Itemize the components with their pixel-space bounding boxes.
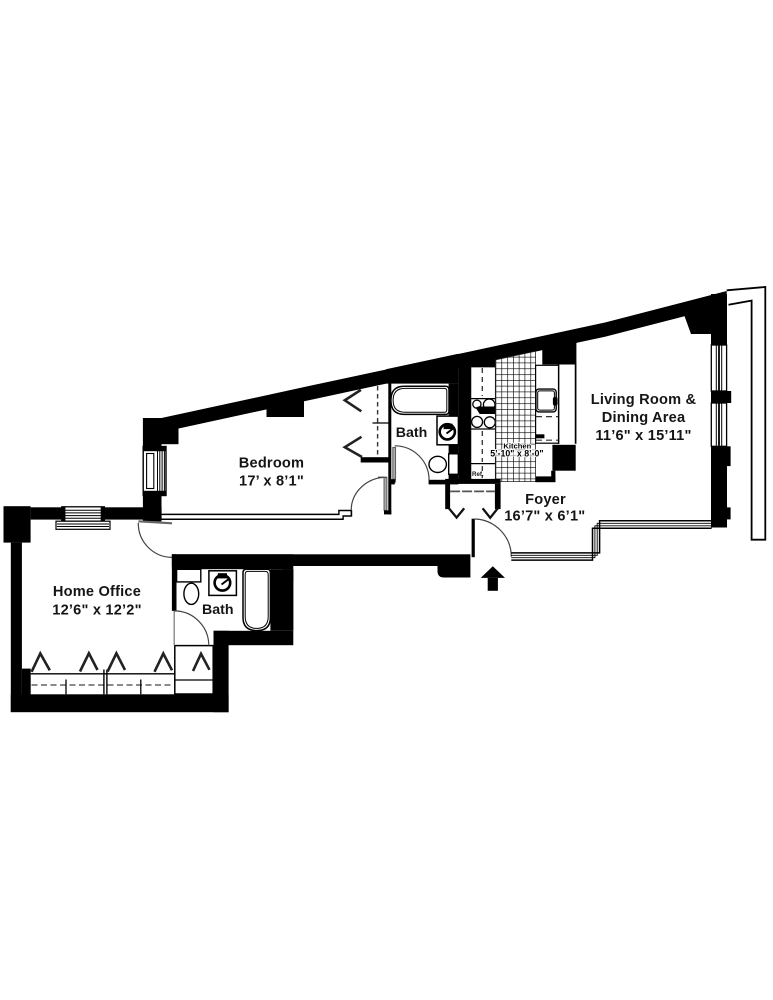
- svg-text:Foyer: Foyer: [525, 492, 566, 508]
- svg-text:12’6" x 12’2": 12’6" x 12’2": [52, 602, 141, 618]
- svg-text:Ref.: Ref.: [472, 471, 484, 478]
- svg-text:Living Room &: Living Room &: [591, 392, 697, 408]
- svg-text:Bath: Bath: [396, 425, 428, 441]
- svg-text:Dining Area: Dining Area: [602, 410, 686, 426]
- svg-text:11’6" x 15’11": 11’6" x 15’11": [595, 428, 691, 444]
- svg-text:Bedroom: Bedroom: [239, 456, 304, 472]
- svg-text:Home Office: Home Office: [53, 584, 141, 600]
- svg-text:16’7" x 6’1": 16’7" x 6’1": [504, 509, 585, 525]
- svg-text:17’ x 8’1": 17’ x 8’1": [239, 473, 304, 489]
- svg-text:5’-10" x 8’-0": 5’-10" x 8’-0": [490, 449, 543, 459]
- svg-text:Bath: Bath: [202, 602, 234, 618]
